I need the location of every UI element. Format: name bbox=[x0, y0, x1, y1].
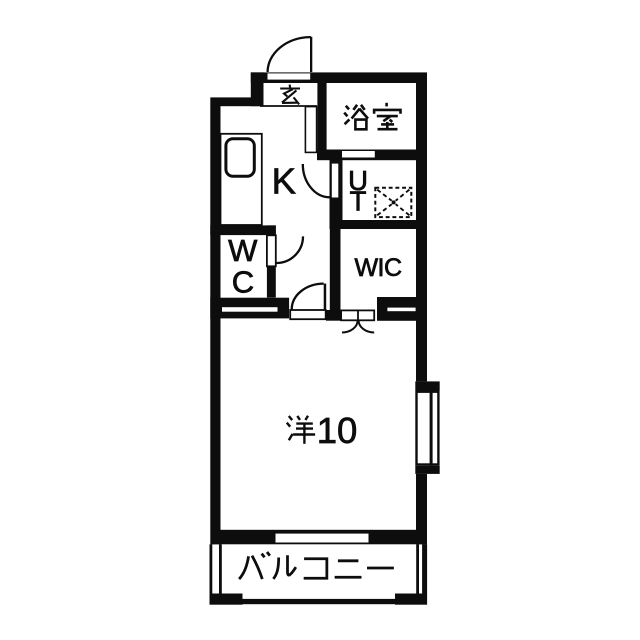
svg-text:10: 10 bbox=[317, 410, 358, 451]
svg-text:W: W bbox=[228, 233, 258, 268]
svg-text:K: K bbox=[272, 160, 296, 201]
svg-text:WIC: WIC bbox=[354, 254, 402, 282]
svg-text:T: T bbox=[350, 186, 367, 217]
svg-text:C: C bbox=[232, 264, 254, 299]
